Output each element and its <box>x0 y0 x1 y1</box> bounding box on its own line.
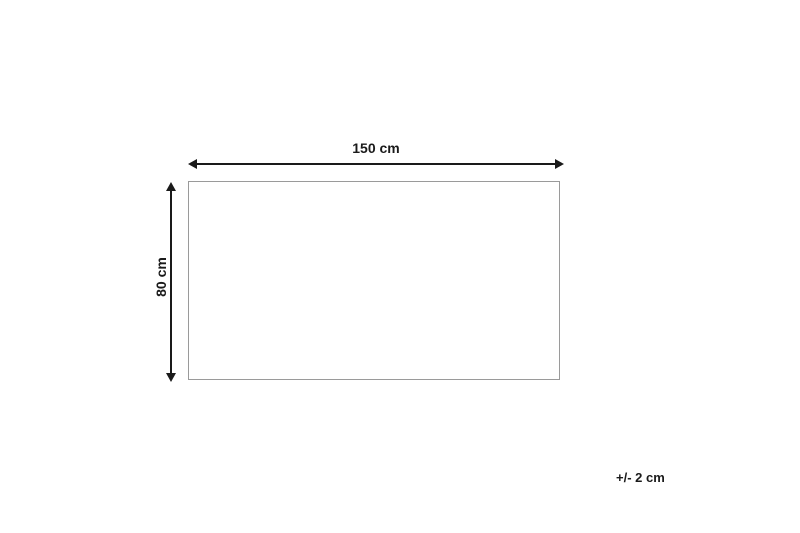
tolerance-label: +/- 2 cm <box>616 470 665 486</box>
width-dimension-arrow <box>196 163 556 165</box>
dimension-diagram: 150 cm 80 cm +/- 2 cm <box>0 0 800 533</box>
product-outline-rectangle <box>188 181 560 380</box>
arrow-left-head-icon <box>188 159 197 169</box>
height-dimension-label: 80 cm <box>154 257 168 297</box>
arrow-up-head-icon <box>166 182 176 191</box>
height-dimension-arrow <box>170 190 172 374</box>
arrow-down-head-icon <box>166 373 176 382</box>
arrow-right-head-icon <box>555 159 564 169</box>
width-dimension-label: 150 cm <box>189 141 563 155</box>
